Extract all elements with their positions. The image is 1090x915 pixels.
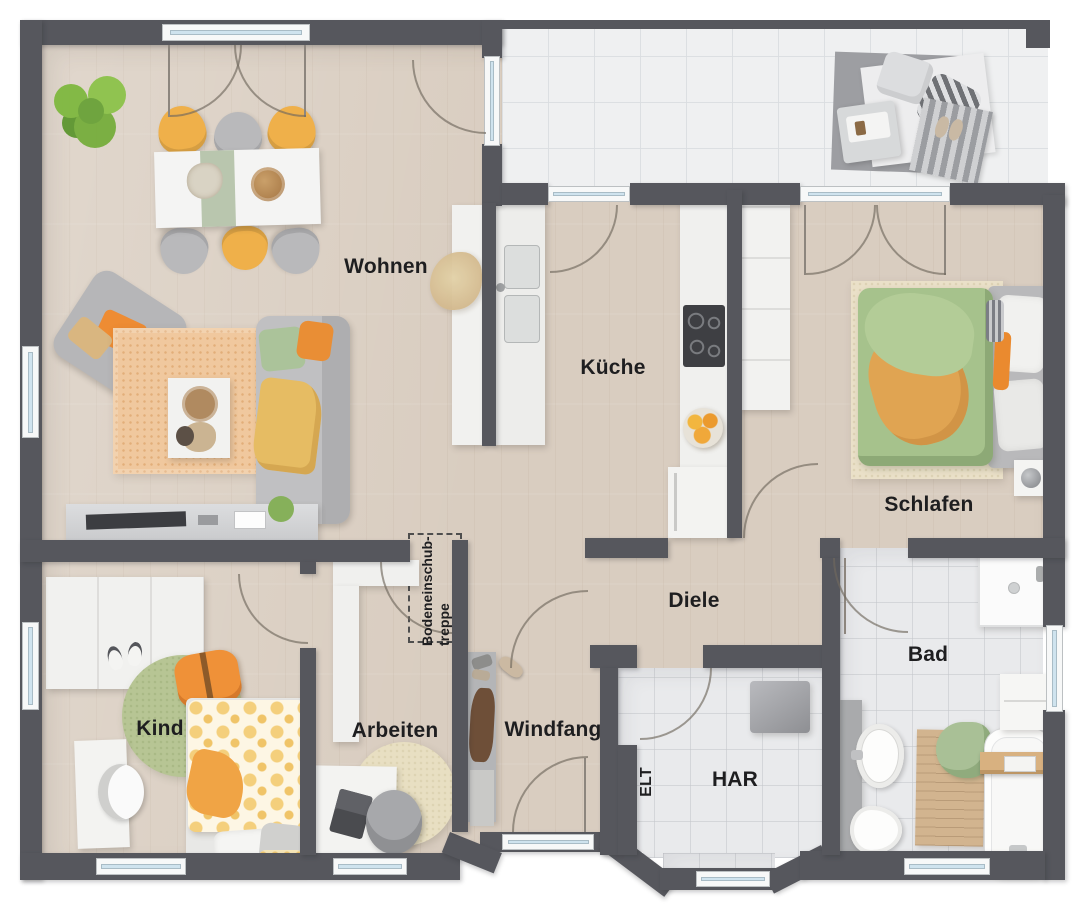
wall-pier [820, 538, 840, 558]
cooktop-icon [683, 305, 725, 367]
wall-diele-south-pier [590, 645, 637, 668]
console-shelf [452, 205, 482, 445]
room-label-diele: Diele [668, 589, 719, 613]
office-chair [366, 790, 422, 854]
wall-har-east [822, 558, 840, 855]
wall-right [1043, 710, 1065, 880]
room-label-windfang: Windfang [504, 718, 601, 742]
wall-wohnen-east [482, 144, 502, 206]
door-leaf [168, 45, 170, 117]
wall-kind-east-stub [300, 562, 316, 574]
window-bad-east [1046, 625, 1063, 712]
bed-pillow-striped [986, 300, 1004, 342]
terrace-edge [502, 20, 1048, 29]
wall-kind-east [300, 648, 316, 855]
door-leaf [584, 758, 586, 832]
french-door-schlafen [800, 186, 950, 202]
fruit-bowl-icon [683, 408, 723, 448]
sofa [256, 316, 350, 524]
room-label-bad: Bad [908, 643, 948, 667]
attic-hatch-line1: Bodeneinschub- [419, 536, 436, 646]
window-wohnen-west [22, 346, 39, 438]
kitchen-counter-right [680, 190, 728, 467]
kitchen-counter-left [496, 205, 545, 445]
bed-duvet [858, 288, 993, 466]
attic-hatch-label: Bodeneinschub- treppe [416, 530, 456, 646]
window-kind-west [22, 622, 39, 710]
floor-plan: Wohnen Küche Schlafen Diele Bad Kind Arb… [0, 0, 1090, 915]
kids-chair [98, 764, 144, 820]
room-label-wohnen: Wohnen [344, 255, 428, 279]
room-label-har: HAR [712, 768, 758, 792]
room-label-kueche: Küche [580, 356, 645, 380]
fridge-cabinet [668, 467, 733, 538]
door-leaf [844, 558, 846, 634]
entry-door [502, 834, 594, 850]
sideboard [66, 504, 318, 542]
plant-icon [78, 98, 104, 124]
terrace-door [484, 56, 500, 146]
room-label-schlafen: Schlafen [884, 493, 973, 517]
wardrobe [738, 205, 790, 410]
wall-kueche-west [482, 203, 496, 446]
shower [978, 548, 1048, 627]
window-kind-south [96, 858, 186, 875]
room-label-elt: ELT [638, 767, 656, 797]
door-leaf [304, 45, 306, 117]
room-label-arbeiten: Arbeiten [352, 719, 439, 743]
window-arbeiten-south [333, 858, 407, 875]
wall-windfang-east [600, 668, 618, 855]
wall-right [1043, 195, 1065, 627]
wall-north-mid [630, 183, 800, 205]
window-har-bay [696, 871, 770, 887]
coat-rack [468, 652, 496, 822]
french-door-wohnen [162, 24, 310, 41]
wall-left [20, 20, 42, 880]
exterior-patch [780, 884, 840, 915]
wall-wohnen-east [482, 20, 502, 58]
office-shelf [333, 560, 419, 586]
window-bad-south [904, 858, 990, 875]
utility-unit [750, 681, 810, 733]
wall-schlafen-south [908, 538, 1065, 558]
wall-north-kueche [502, 183, 548, 205]
wall-diele-south [703, 645, 822, 668]
terrace-post [1026, 20, 1050, 48]
coffee-table [168, 378, 230, 458]
attic-hatch-line2: treppe [436, 603, 453, 646]
door-leaf [804, 205, 806, 275]
wall-kueche-east [727, 190, 742, 538]
door-leaf [944, 205, 946, 275]
wall-kueche-south [585, 538, 668, 558]
dining-table [154, 148, 321, 228]
window-kueche-north [548, 186, 630, 202]
terrace-tray-table [836, 100, 901, 164]
room-label-kind: Kind [136, 717, 183, 741]
wall-wohnen-south [20, 540, 410, 562]
wall-elt [618, 745, 637, 855]
